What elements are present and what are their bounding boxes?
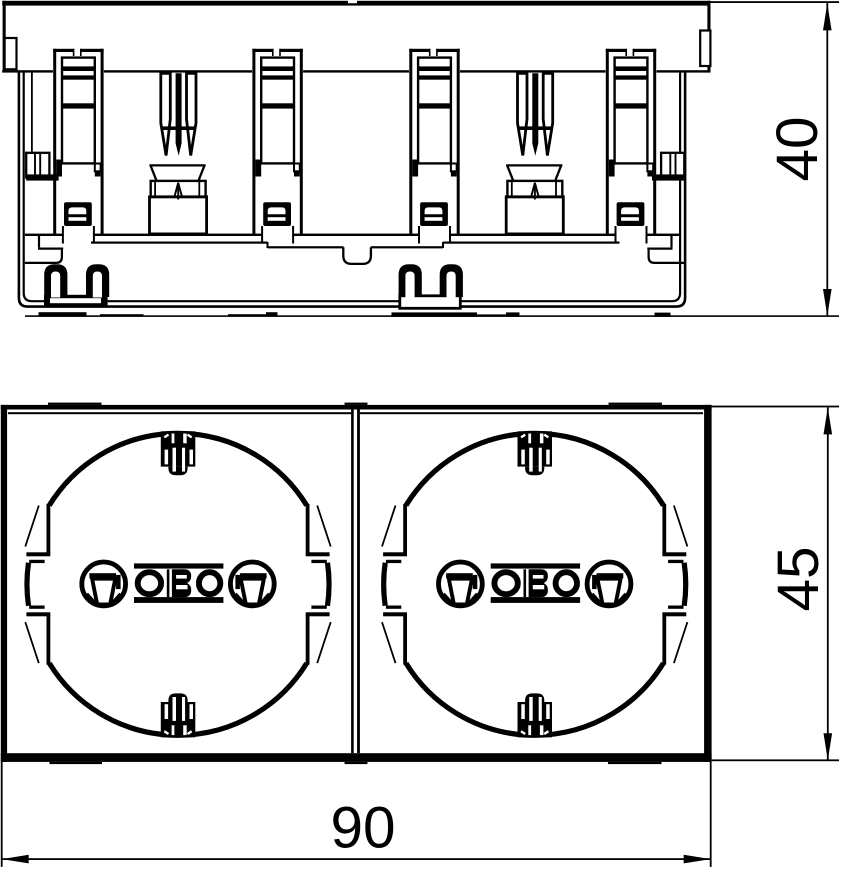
svg-text:40: 40 bbox=[765, 116, 830, 181]
svg-text:90: 90 bbox=[330, 796, 395, 861]
svg-text:45: 45 bbox=[766, 546, 831, 611]
